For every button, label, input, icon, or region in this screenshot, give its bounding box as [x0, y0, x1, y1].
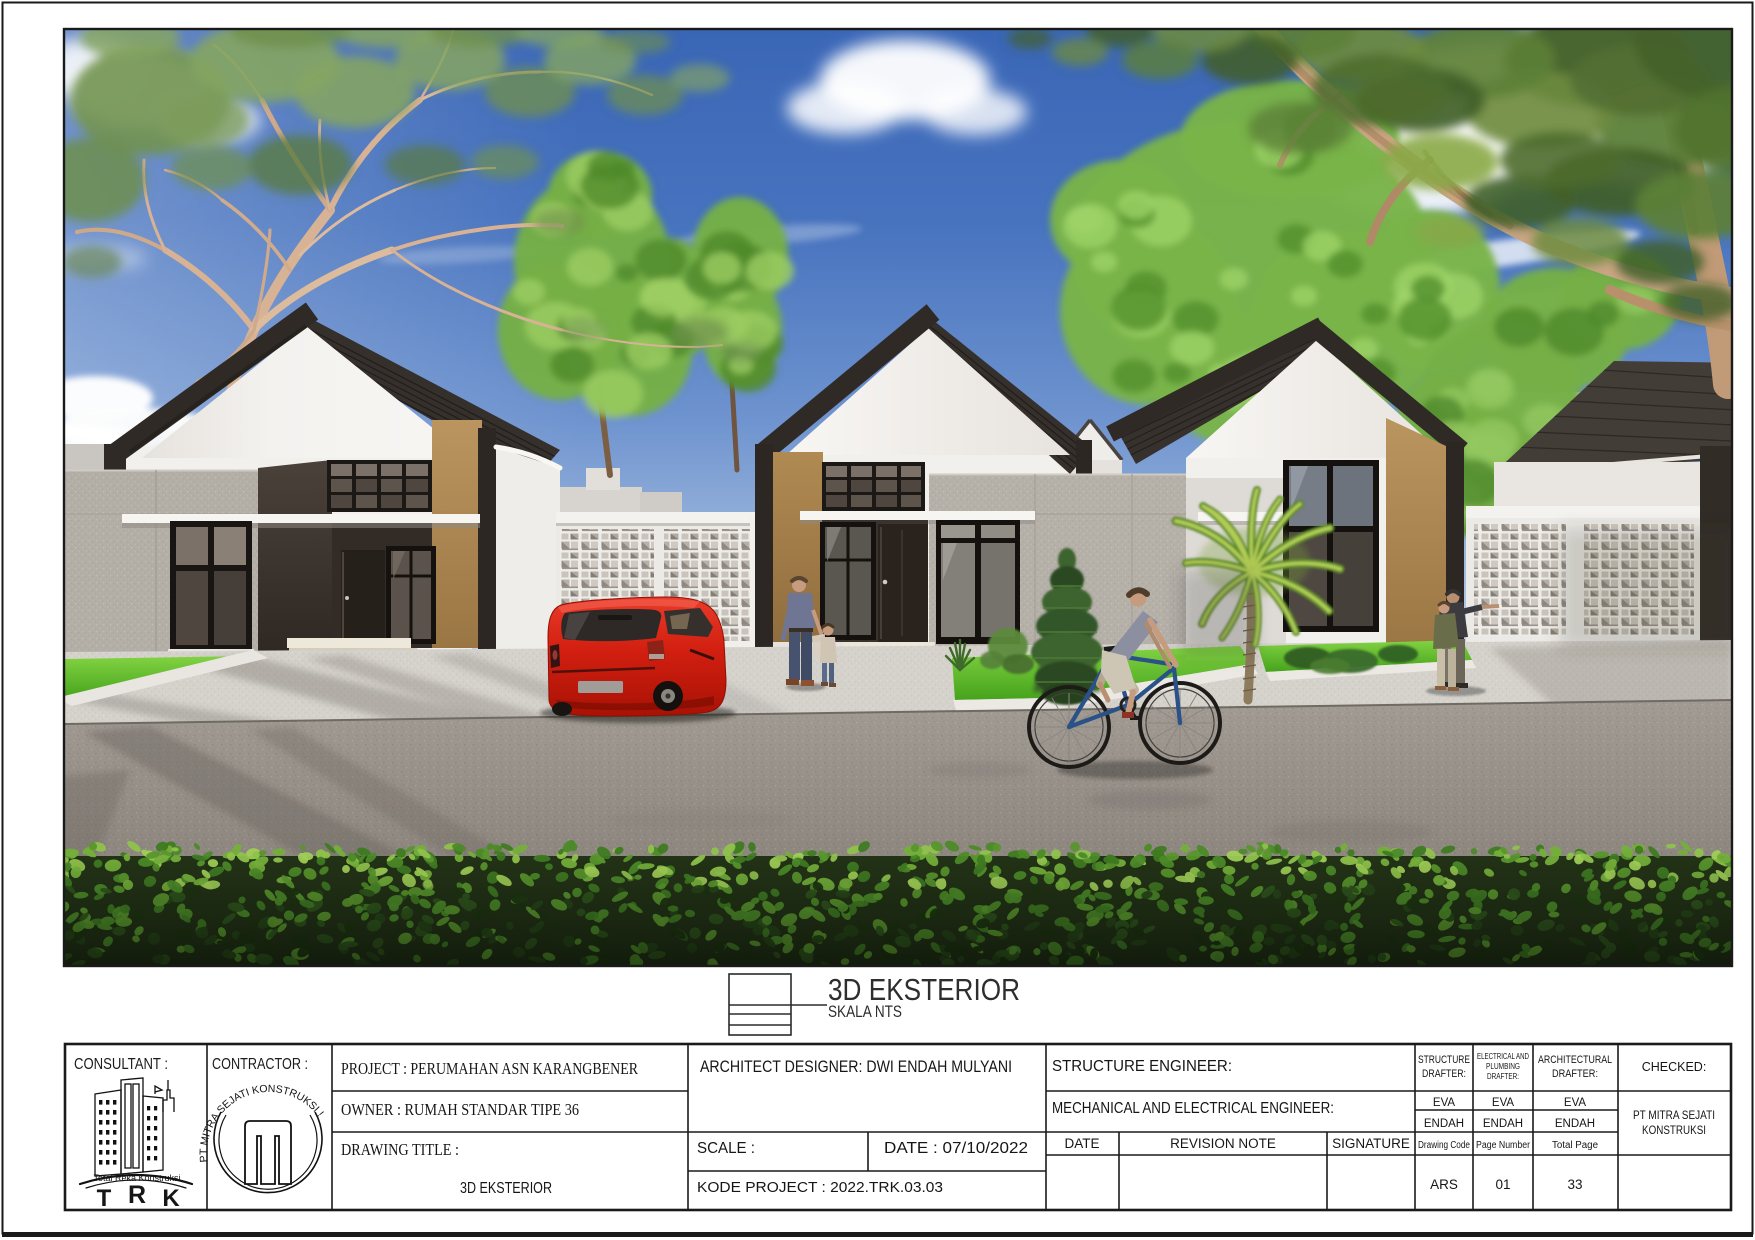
svg-text:01: 01	[1495, 1177, 1510, 1192]
svg-text:ENDAH: ENDAH	[1483, 1118, 1523, 1130]
svg-text:SKALA NTS: SKALA NTS	[828, 1002, 902, 1021]
svg-text:K: K	[162, 1185, 180, 1212]
svg-text:CONTRACTOR :: CONTRACTOR :	[212, 1056, 308, 1073]
svg-text:CHECKED:: CHECKED:	[1642, 1060, 1707, 1074]
svg-text:STRUCTURE: STRUCTURE	[1418, 1054, 1470, 1066]
svg-text:SIGNATURE: SIGNATURE	[1332, 1136, 1410, 1151]
svg-text:33: 33	[1567, 1177, 1582, 1192]
svg-text:ARCHITECT DESIGNER: DWI ENDAH: ARCHITECT DESIGNER: DWI ENDAH MULYANI	[700, 1058, 1012, 1076]
svg-text:EVA: EVA	[1492, 1097, 1514, 1109]
svg-text:KODE PROJECT : 2022.TRK.03.03: KODE PROJECT : 2022.TRK.03.03	[697, 1179, 943, 1196]
svg-text:Page Number: Page Number	[1476, 1140, 1531, 1151]
svg-text:KONSTRUKSI: KONSTRUKSI	[1642, 1125, 1706, 1137]
svg-text:DATE: DATE	[1064, 1136, 1099, 1151]
svg-text:PROJECT : PERUMAHAN ASN KARAN: PROJECT : PERUMAHAN ASN KARANGBENER	[341, 1059, 638, 1078]
svg-text:SCALE :: SCALE :	[697, 1140, 755, 1157]
svg-text:EVA: EVA	[1564, 1097, 1586, 1109]
svg-text:Total Page: Total Page	[1552, 1140, 1598, 1151]
svg-text:DRAFTER:: DRAFTER:	[1422, 1068, 1466, 1080]
svg-text:3D EKSTERIOR: 3D EKSTERIOR	[460, 1180, 552, 1197]
svg-text:PLUMBING: PLUMBING	[1486, 1062, 1520, 1071]
svg-text:ARCHITECTURAL: ARCHITECTURAL	[1538, 1054, 1612, 1066]
svg-text:STRUCTURE ENGINEER:: STRUCTURE ENGINEER:	[1052, 1058, 1232, 1075]
svg-text:R: R	[128, 1181, 146, 1209]
svg-text:ELECTRICAL AND: ELECTRICAL AND	[1477, 1052, 1529, 1061]
svg-text:DRAFTER:: DRAFTER:	[1487, 1072, 1519, 1081]
svg-text:REVISION NOTE: REVISION NOTE	[1170, 1136, 1276, 1151]
svg-text:DRAFTER:: DRAFTER:	[1552, 1068, 1598, 1080]
svg-text:DRAWING TITLE :: DRAWING TITLE :	[341, 1140, 459, 1159]
svg-text:EVA: EVA	[1433, 1097, 1455, 1109]
svg-text:DATE : 07/10/2022: DATE : 07/10/2022	[884, 1140, 1028, 1157]
svg-text:MECHANICAL AND ELECTRICAL ENGI: MECHANICAL AND ELECTRICAL ENGINEER:	[1052, 1100, 1334, 1117]
svg-text:ENDAH: ENDAH	[1555, 1118, 1595, 1130]
svg-text:PT MITRA SEJATI: PT MITRA SEJATI	[1633, 1110, 1715, 1122]
svg-text:Drawing Code: Drawing Code	[1418, 1140, 1470, 1151]
svg-text:OWNER : RUMAH STANDAR TIPE 3: OWNER : RUMAH STANDAR TIPE 36	[341, 1100, 579, 1119]
svg-text:CONSULTANT :: CONSULTANT :	[74, 1056, 168, 1073]
svg-text:ENDAH: ENDAH	[1424, 1118, 1464, 1130]
svg-text:ARS: ARS	[1430, 1177, 1458, 1192]
svg-text:T: T	[97, 1185, 112, 1212]
